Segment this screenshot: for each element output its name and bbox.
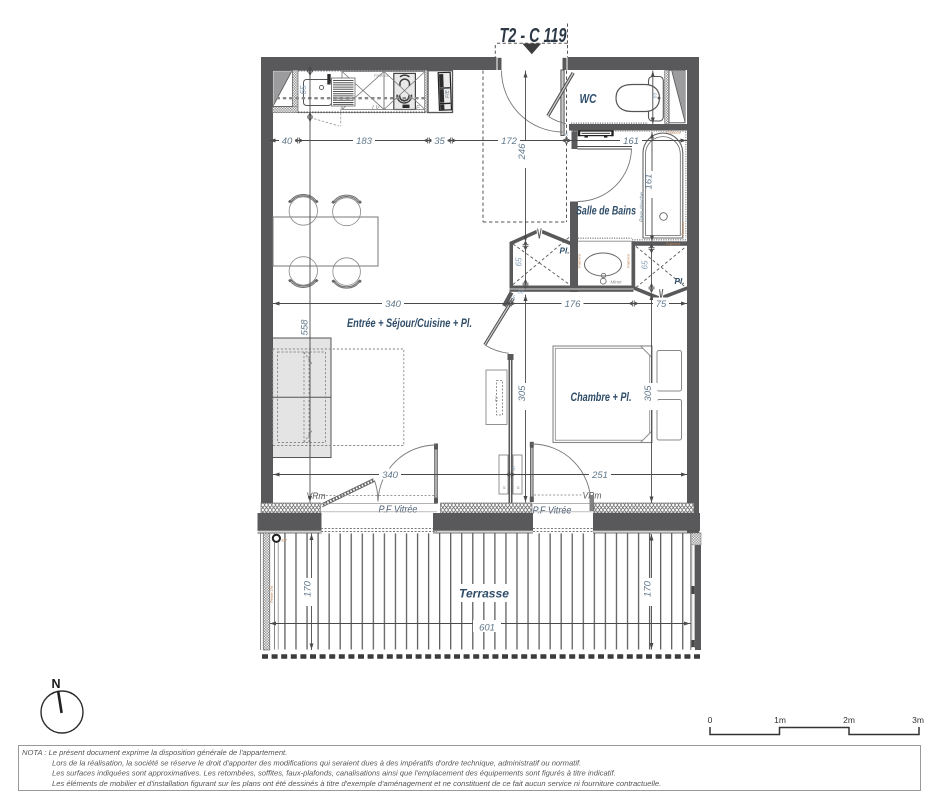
svg-text:Pare-douche: Pare-douche	[640, 192, 646, 222]
svg-text:83: 83	[653, 93, 659, 99]
svg-text:601: 601	[479, 623, 495, 634]
svg-text:176: 176	[565, 299, 582, 310]
svg-text:161: 161	[623, 136, 639, 147]
svg-text:EP: EP	[282, 538, 288, 543]
svg-text:WC: WC	[580, 91, 597, 106]
svg-text:0: 0	[708, 715, 713, 725]
svg-text:T2 - C 119: T2 - C 119	[500, 25, 568, 47]
svg-text:65: 65	[299, 85, 308, 94]
svg-text:170: 170	[303, 580, 314, 597]
svg-text:170: 170	[643, 580, 654, 597]
svg-text:Pl.: Pl.	[560, 246, 570, 256]
svg-text:Salle de Bains: Salle de Bains	[576, 204, 636, 218]
svg-text:Faience: Faience	[680, 221, 685, 236]
svg-text:161: 161	[644, 174, 655, 190]
svg-text:TV: TV	[494, 395, 499, 402]
svg-text:Pente 1%: Pente 1%	[269, 585, 274, 603]
svg-text:Terrasse: Terrasse	[459, 589, 510, 601]
svg-text:75: 75	[656, 299, 667, 310]
svg-text:246: 246	[517, 143, 528, 161]
svg-text:R: R	[516, 486, 521, 489]
svg-text:65: 65	[641, 260, 650, 269]
svg-text:2m: 2m	[843, 715, 855, 725]
svg-text:40: 40	[282, 136, 293, 147]
svg-text:305: 305	[517, 385, 528, 402]
svg-text:3m: 3m	[912, 715, 924, 725]
svg-text:N: N	[51, 677, 60, 691]
svg-text:Les éléments de mobilier et d': Les éléments de mobilier et d'installati…	[52, 779, 661, 788]
svg-text:Pl.: Pl.	[675, 276, 685, 286]
svg-text:251: 251	[591, 470, 608, 481]
svg-text:Lors de la réalisation, la soc: Lors de la réalisation, la société se ré…	[52, 758, 581, 767]
svg-text:NOTA : Le présent document exp: NOTA : Le présent document exprime la di…	[22, 748, 287, 757]
svg-text:Faience: Faience	[374, 73, 390, 78]
svg-text:6: 6	[565, 133, 568, 139]
svg-text:P.F Vitrée: P.F Vitrée	[533, 506, 572, 517]
svg-text:340: 340	[382, 470, 399, 481]
svg-text:5: 5	[513, 296, 516, 302]
svg-text:LV: LV	[372, 105, 380, 112]
svg-text:P.F Vitrée: P.F Vitrée	[379, 505, 418, 516]
svg-text:Les surfaces indiquées sont ap: Les surfaces indiquées sont approximativ…	[52, 769, 616, 778]
svg-text:Chambre + Pl.: Chambre + Pl.	[571, 390, 632, 404]
svg-text:172: 172	[501, 136, 518, 147]
svg-text:Faience: Faience	[626, 253, 631, 268]
svg-text:F/E: F/E	[444, 89, 450, 98]
svg-text:Faience: Faience	[577, 253, 582, 268]
svg-text:63: 63	[518, 289, 524, 295]
svg-text:340: 340	[385, 299, 402, 310]
svg-text:558: 558	[300, 319, 311, 336]
svg-text:Miroir: Miroir	[611, 280, 623, 285]
svg-text:183: 183	[356, 136, 373, 147]
svg-text:65: 65	[515, 257, 524, 266]
svg-text:Entrée + Séjour/Cuisine + Pl.: Entrée + Séjour/Cuisine + Pl.	[347, 316, 472, 330]
svg-text:1m: 1m	[774, 715, 786, 725]
svg-text:5: 5	[513, 467, 516, 473]
svg-text:305: 305	[643, 385, 654, 402]
svg-text:R: R	[502, 486, 507, 489]
svg-text:Faience: Faience	[666, 241, 681, 246]
svg-text:35: 35	[434, 136, 445, 147]
